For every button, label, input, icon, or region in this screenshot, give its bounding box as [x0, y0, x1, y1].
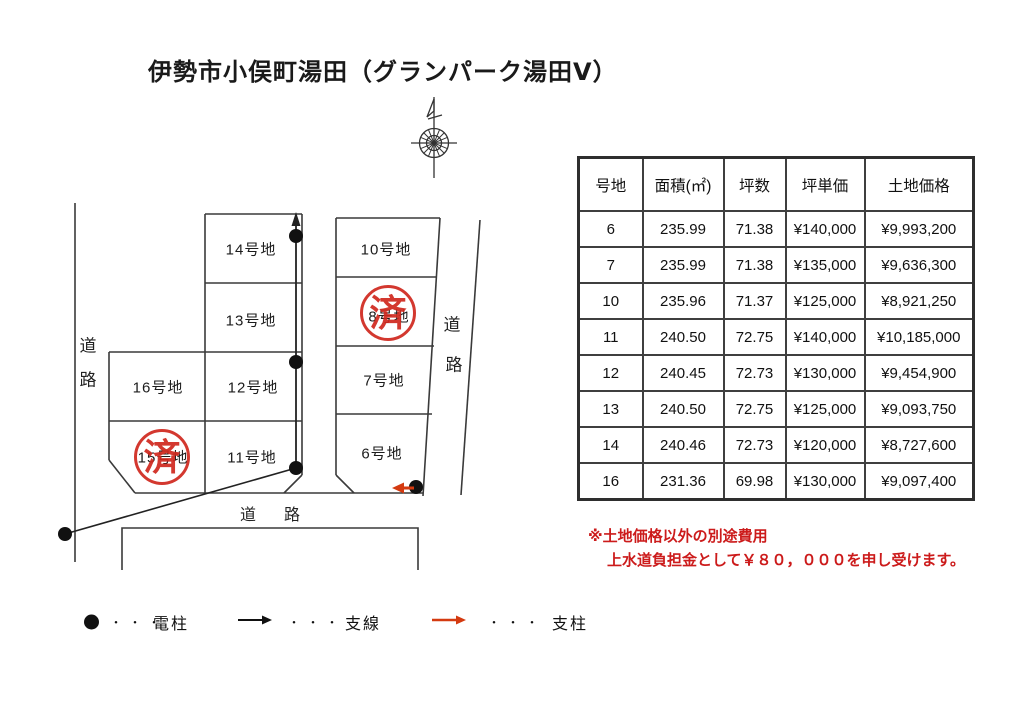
cell-lot: 16	[579, 463, 643, 500]
table-row: 13240.5072.75¥125,000¥9,093,750	[579, 391, 974, 427]
cell-tsubo: 71.38	[724, 247, 786, 283]
cell-lot: 6	[579, 211, 643, 247]
cell-land-price: ¥10,185,000	[865, 319, 974, 355]
plot-label-13: 13号地	[226, 310, 277, 331]
cell-area: 235.96	[643, 283, 724, 319]
cell-area: 235.99	[643, 211, 724, 247]
header-land-price: 土地価格	[865, 158, 974, 212]
table-row: 14240.4672.73¥120,000¥8,727,600	[579, 427, 974, 463]
legend-separator: ・・・	[488, 614, 545, 631]
legend-label-support-pole: 支柱	[552, 610, 588, 634]
cell-unit-price: ¥125,000	[786, 391, 865, 427]
price-table-header-row: 号地 面積(㎡) 坪数 坪単価 土地価格	[579, 158, 974, 212]
cell-land-price: ¥9,093,750	[865, 391, 974, 427]
price-table: 号地 面積(㎡) 坪数 坪単価 土地価格 6235.9971.38¥140,00…	[577, 156, 975, 501]
table-row: 11240.5072.75¥140,000¥10,185,000	[579, 319, 974, 355]
header-unit-price: 坪単価	[786, 158, 865, 212]
plot-label-14: 14号地	[226, 239, 277, 260]
road-edge-right	[461, 220, 480, 495]
utility-pole-dot	[58, 527, 72, 541]
power-line	[65, 212, 301, 534]
legend-label-utility-pole: 電柱	[153, 610, 189, 634]
cell-tsubo: 72.75	[724, 391, 786, 427]
cell-area: 240.50	[643, 319, 724, 355]
cell-area: 240.45	[643, 355, 724, 391]
cell-lot: 11	[579, 319, 643, 355]
utility-pole-dot	[289, 229, 303, 243]
cell-unit-price: ¥130,000	[786, 355, 865, 391]
header-tsubo: 坪数	[724, 158, 786, 212]
document-page: 伊勢市小俣町湯田（グランパーク湯田Ⅴ）	[0, 0, 1024, 722]
utility-pole-dot	[289, 355, 303, 369]
cell-tsubo: 71.38	[724, 211, 786, 247]
support-pole-legend-arrow-icon	[432, 613, 466, 631]
cell-unit-price: ¥120,000	[786, 427, 865, 463]
cell-land-price: ¥8,727,600	[865, 427, 974, 463]
road-label-left-2: 路	[80, 366, 97, 391]
road-label-right-2: 路	[446, 351, 463, 376]
cell-tsubo: 72.73	[724, 355, 786, 391]
road-label-left-1: 道	[80, 332, 97, 357]
cell-land-price: ¥9,454,900	[865, 355, 974, 391]
cell-unit-price: ¥140,000	[786, 211, 865, 247]
cell-unit-price: ¥130,000	[786, 463, 865, 500]
cell-land-price: ¥9,636,300	[865, 247, 974, 283]
plot-label-12: 12号地	[228, 377, 279, 398]
cell-unit-price: ¥140,000	[786, 319, 865, 355]
table-row: 6235.9971.38¥140,000¥9,993,200	[579, 211, 974, 247]
plot-label-16: 16号地	[133, 377, 184, 398]
cell-unit-price: ¥135,000	[786, 247, 865, 283]
cell-land-price: ¥9,993,200	[865, 211, 974, 247]
cell-tsubo: 72.73	[724, 427, 786, 463]
legend-label-guy-wire: 支線	[345, 610, 381, 634]
sold-stamp-plot-15: 済	[134, 429, 190, 485]
south-block-outline	[122, 528, 418, 570]
cell-tsubo: 72.75	[724, 319, 786, 355]
header-area: 面積(㎡)	[643, 158, 724, 212]
cell-lot: 13	[579, 391, 643, 427]
road-label-bottom: 道 路	[240, 501, 306, 525]
cell-lot: 12	[579, 355, 643, 391]
cell-lot: 10	[579, 283, 643, 319]
plot-label-11: 11号地	[227, 447, 277, 468]
road-label-right-1: 道	[444, 311, 461, 336]
cell-unit-price: ¥125,000	[786, 283, 865, 319]
cell-area: 240.46	[643, 427, 724, 463]
plot-label-7: 7号地	[363, 370, 404, 391]
table-row: 10235.9671.37¥125,000¥8,921,250	[579, 283, 974, 319]
guy-wire-legend-arrow-icon	[238, 613, 272, 631]
compass-icon	[411, 97, 457, 178]
utility-pole-legend-icon	[84, 615, 99, 630]
cell-land-price: ¥8,921,250	[865, 283, 974, 319]
legend-separator: ・・・	[288, 614, 345, 631]
header-lot: 号地	[579, 158, 643, 212]
sold-stamp-plot-8: 済	[360, 285, 416, 341]
cell-lot: 7	[579, 247, 643, 283]
extra-cost-note-line1: ※土地価格以外の別途費用	[588, 525, 768, 546]
cell-area: 240.50	[643, 391, 724, 427]
cell-area: 235.99	[643, 247, 724, 283]
table-row: 12240.4572.73¥130,000¥9,454,900	[579, 355, 974, 391]
cell-area: 231.36	[643, 463, 724, 500]
plot-label-10: 10号地	[361, 239, 412, 260]
plot-label-6: 6号地	[361, 443, 402, 464]
utility-pole-dot	[289, 461, 303, 475]
extra-cost-note-line2: 上水道負担金として￥８０，０００を申し受けます。	[607, 549, 965, 570]
cell-lot: 14	[579, 427, 643, 463]
cell-tsubo: 69.98	[724, 463, 786, 500]
cell-tsubo: 71.37	[724, 283, 786, 319]
table-row: 16231.3669.98¥130,000¥9,097,400	[579, 463, 974, 500]
cell-land-price: ¥9,097,400	[865, 463, 974, 500]
table-row: 7235.9971.38¥135,000¥9,636,300	[579, 247, 974, 283]
